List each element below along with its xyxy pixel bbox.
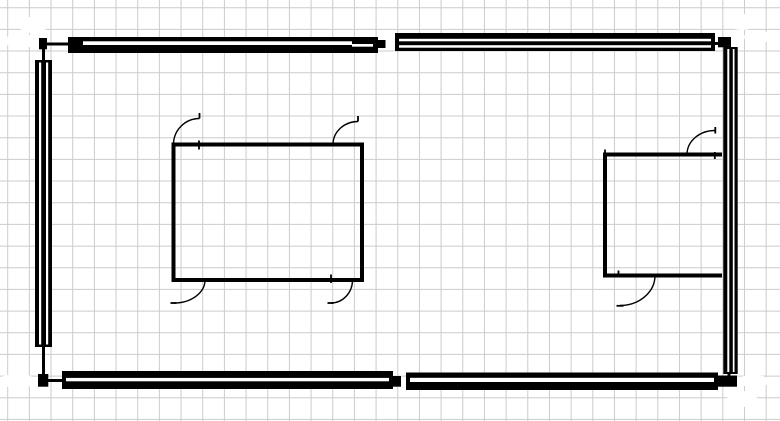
wall-bottom-left-segment-stripe-0: [66, 378, 389, 381]
whiteout-top-left-b: [4, 34, 38, 48]
wall-top-left-segment-stripe-0: [83, 41, 352, 45]
whiteout-bottom-right-b: [727, 391, 757, 407]
wall-left-band: [35, 60, 52, 347]
wall-right-band: [723, 47, 737, 374]
wall-top-left-segment-stripe-1: [352, 44, 373, 47]
joint-top-wall: [377, 40, 386, 48]
wall-right-stripe-1: [733, 49, 735, 372]
wall-left-stripe-0: [39, 63, 41, 345]
wall-top-right-segment[interactable]: [395, 33, 715, 51]
wall-bottom-right-segment[interactable]: [406, 373, 718, 391]
whiteout-top-right-a: [727, 14, 757, 30]
whiteout-top-right-b: [744, 30, 770, 44]
wall-left-stripe-1: [46, 63, 48, 345]
paper-background: [0, 0, 780, 421]
whiteout-top-left-a: [18, 17, 48, 33]
drawing-canvas[interactable]: [0, 0, 780, 421]
wall-top-right-segment-stripe-1: [399, 45, 711, 48]
wall-top-right-segment-band: [395, 33, 715, 51]
wall-left[interactable]: [35, 60, 52, 347]
wall-right-stripe-0: [727, 49, 729, 372]
whiteout-bottom-right-a: [736, 375, 770, 387]
wall-top-right-segment-stripe-0: [399, 39, 711, 42]
wall-bottom-left-segment[interactable]: [62, 371, 393, 389]
joint-bottom-wall: [393, 376, 401, 387]
wall-bottom-right-segment-stripe-0: [410, 378, 714, 382]
wall-top-left-segment[interactable]: [68, 37, 378, 53]
wall-right[interactable]: [723, 47, 737, 374]
floor-plan-svg: [0, 0, 780, 421]
